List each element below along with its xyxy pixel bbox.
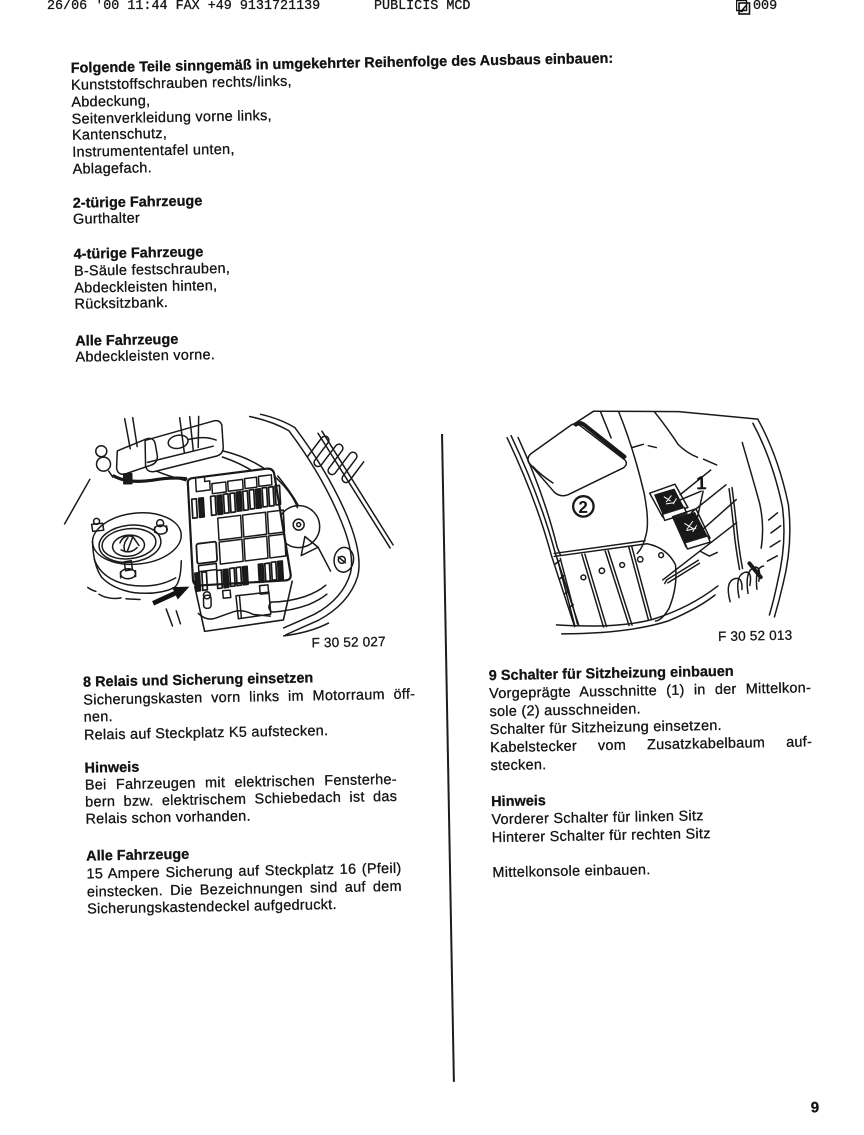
svg-text:2: 2 [578,498,588,517]
